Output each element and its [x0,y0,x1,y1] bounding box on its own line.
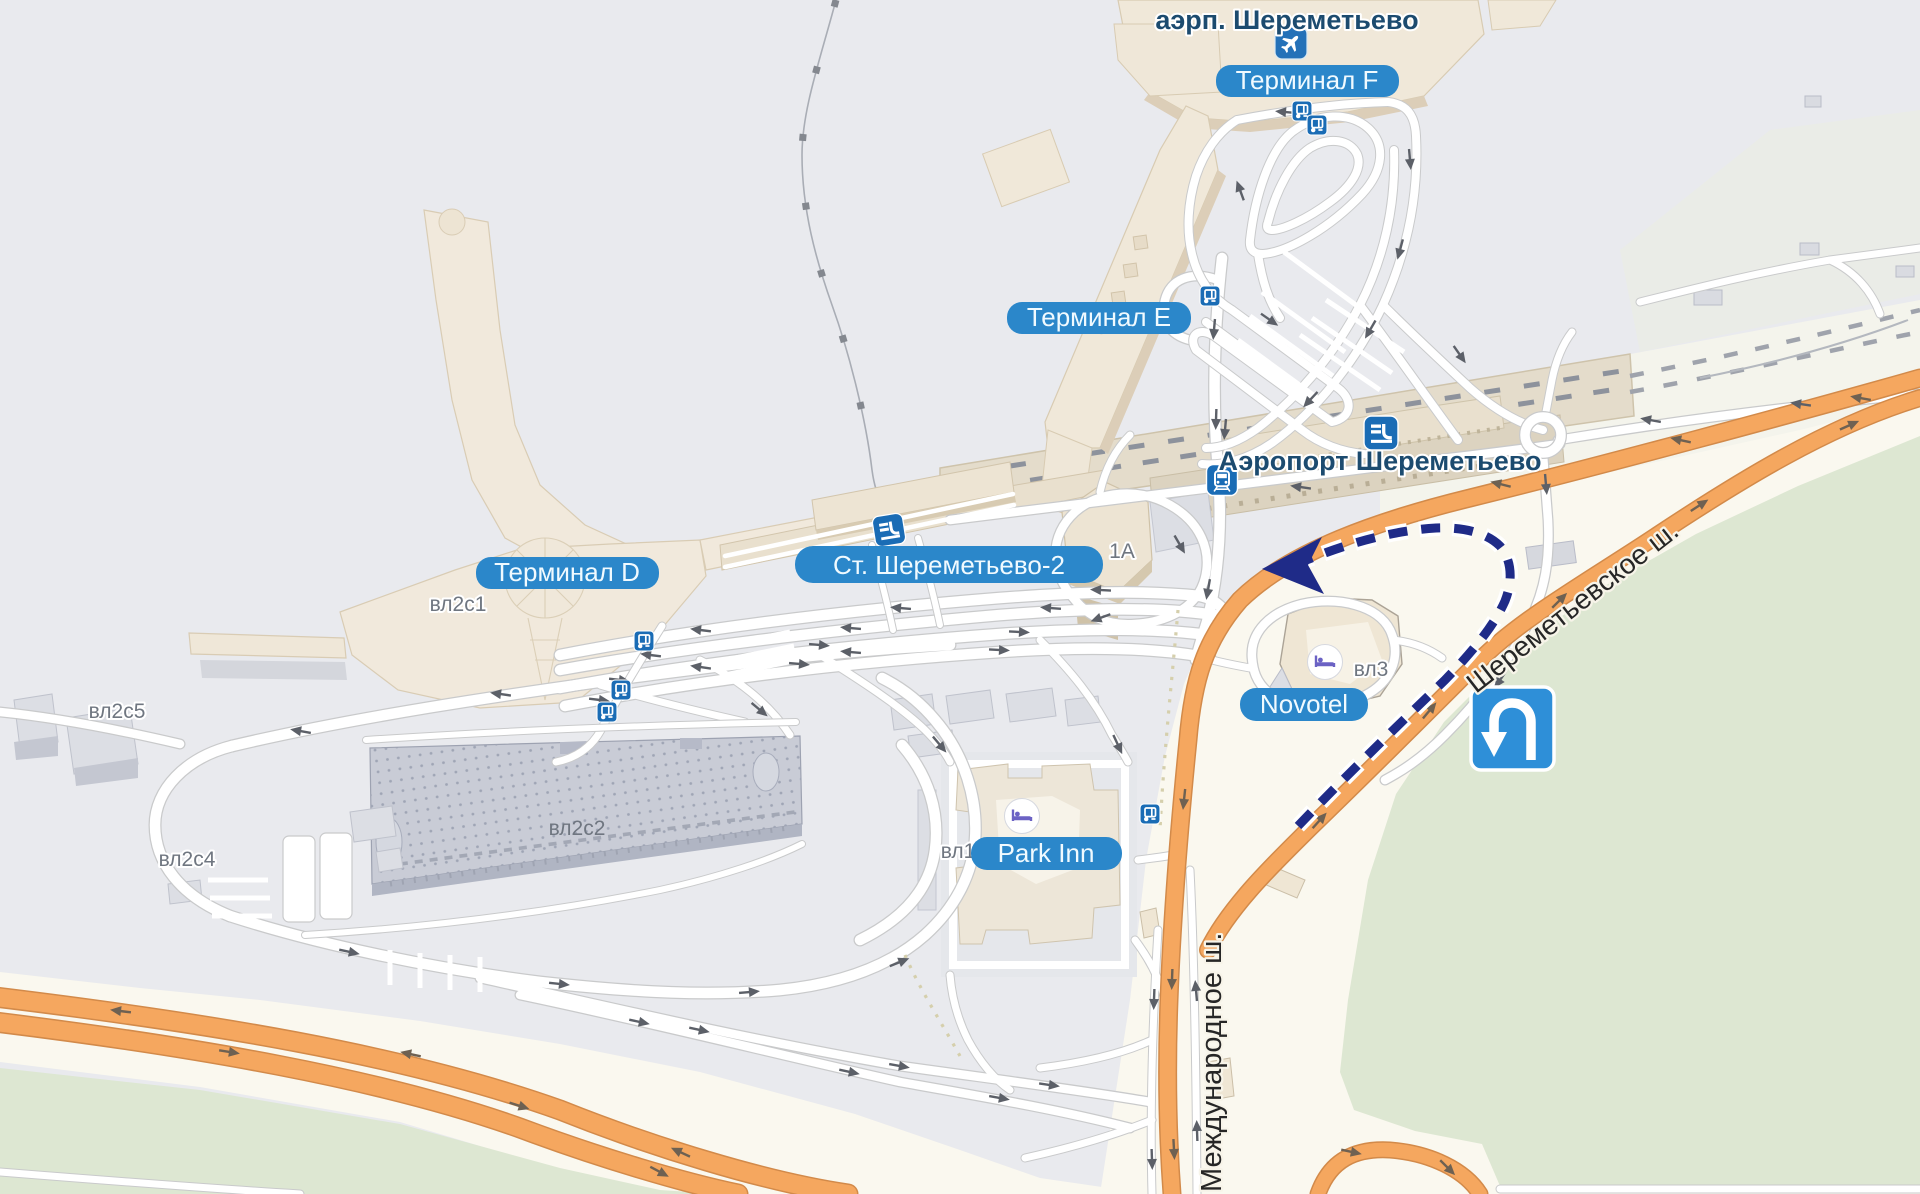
svg-text:Международное ш.: Международное ш. [1196,933,1228,1192]
svg-text:вл2с4: вл2с4 [159,848,216,871]
svg-text:Park Inn: Park Inn [998,838,1095,868]
svg-text:вл2с5: вл2с5 [89,700,146,723]
svg-text:Терминал D: Терминал D [494,557,640,587]
svg-text:Novotel: Novotel [1260,689,1348,719]
svg-text:вл2с1: вл2с1 [430,593,487,616]
svg-text:1А: 1А [1109,540,1135,563]
svg-text:Аэропорт Шереметьево: Аэропорт Шереметьево [1219,446,1542,476]
svg-text:Терминал E: Терминал E [1027,302,1171,332]
svg-text:вл3: вл3 [1354,658,1389,681]
svg-text:вл1: вл1 [941,840,976,863]
svg-text:Терминал F: Терминал F [1236,65,1379,95]
svg-text:вл2с2: вл2с2 [549,817,606,840]
svg-text:Ст. Шереметьево-2: Ст. Шереметьево-2 [833,550,1065,580]
svg-text:аэрп. Шереметьево: аэрп. Шереметьево [1155,5,1418,35]
